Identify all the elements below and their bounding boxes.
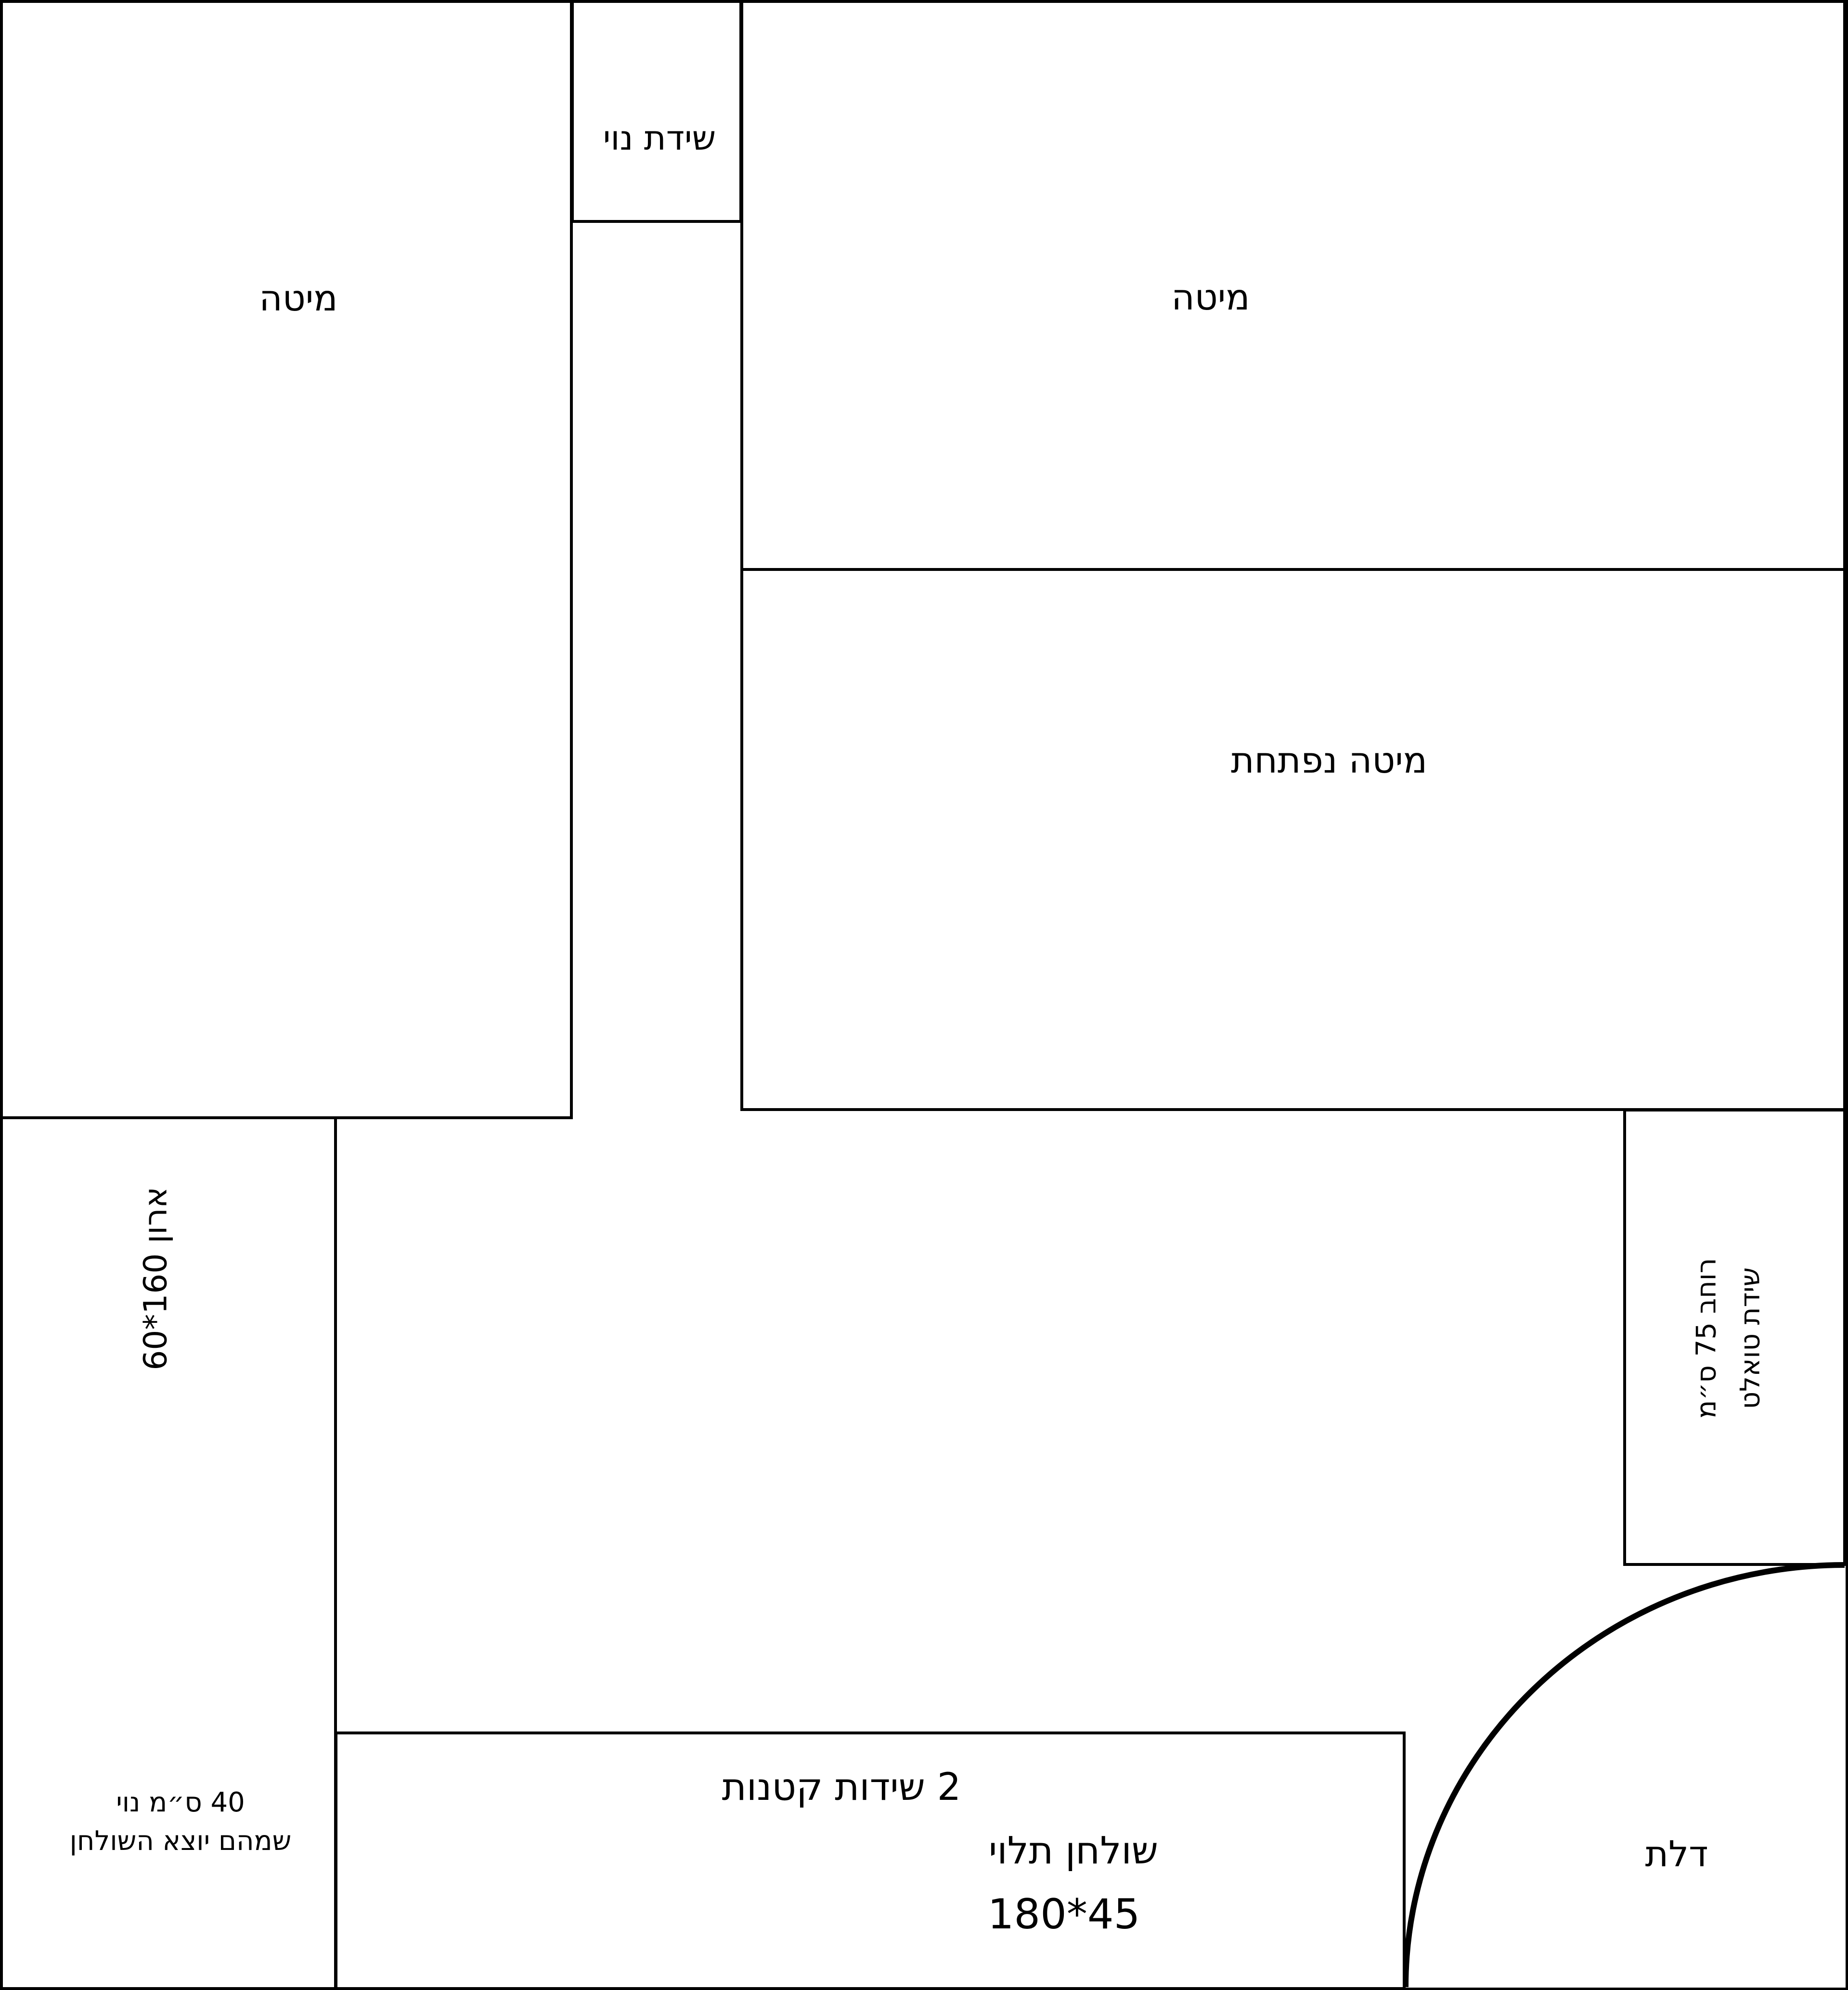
hanging-table-dimensions: 180*45 [988, 1890, 1140, 1938]
closet-label: ארון 160*60 [137, 1187, 174, 1370]
bed-right-label: מיטה [1171, 277, 1250, 318]
bed-right-outline [740, 0, 1846, 571]
floor-plan: מיטה שידת נוי מיטה מיטה נפתחת ארון 160*6… [0, 0, 1848, 1990]
hanging-table-label: שולחן תלוי [989, 1829, 1158, 1873]
corner-note-line2: שמהם יוצא השולחן [70, 1822, 292, 1861]
bed-left-outline [0, 0, 573, 1119]
opening-bed-outline [740, 568, 1846, 1111]
toilet-dresser-label-line1: שידת טואלט [1735, 1267, 1766, 1409]
decor-dresser-outline [571, 0, 742, 223]
corner-note-line1: 40 ס״מ נוי [70, 1783, 292, 1822]
toilet-dresser-label-line2: רוחב 75 ס״מ [1691, 1258, 1722, 1418]
decor-dresser-label: שידת נוי [603, 118, 716, 158]
small-dressers-label: 2 שידות קטנות [722, 1766, 961, 1809]
opening-bed-label: מיטה נפתחת [1231, 740, 1427, 781]
corner-note: 40 ס״מ נוי שמהם יוצא השולחן [70, 1783, 292, 1861]
door-arc-path [1406, 1565, 1845, 1987]
bed-left-label: מיטה [259, 278, 337, 319]
door-label: דלת [1645, 1834, 1708, 1875]
